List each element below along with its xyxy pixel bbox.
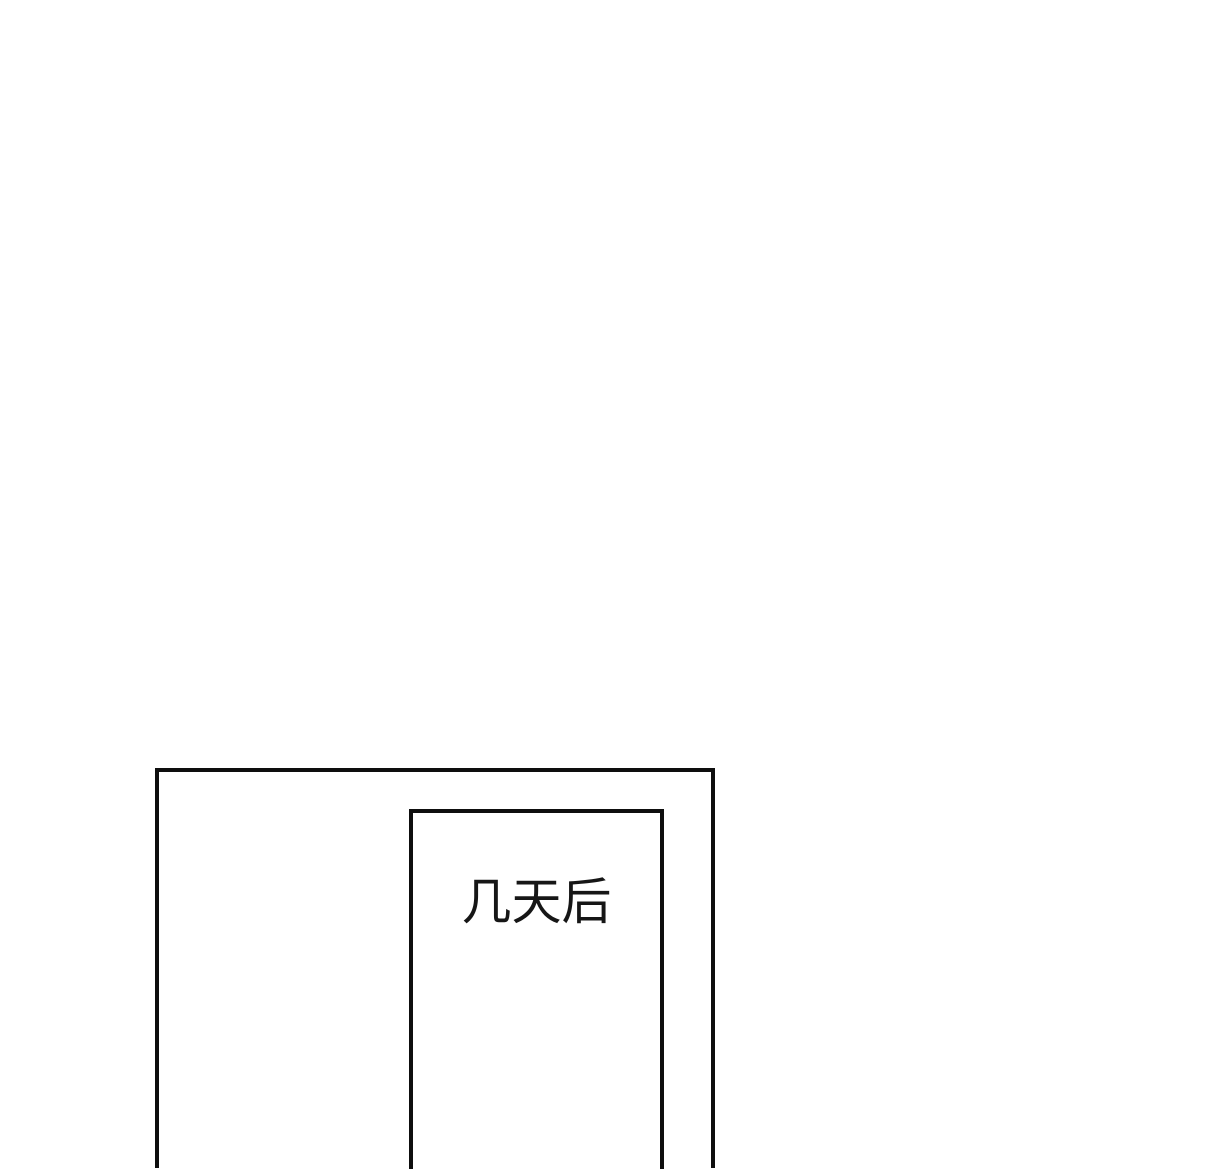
caption-box: 几天后: [409, 809, 664, 1169]
caption-text: 几天后: [462, 875, 612, 930]
comic-page: 几天后: [0, 0, 1220, 978]
